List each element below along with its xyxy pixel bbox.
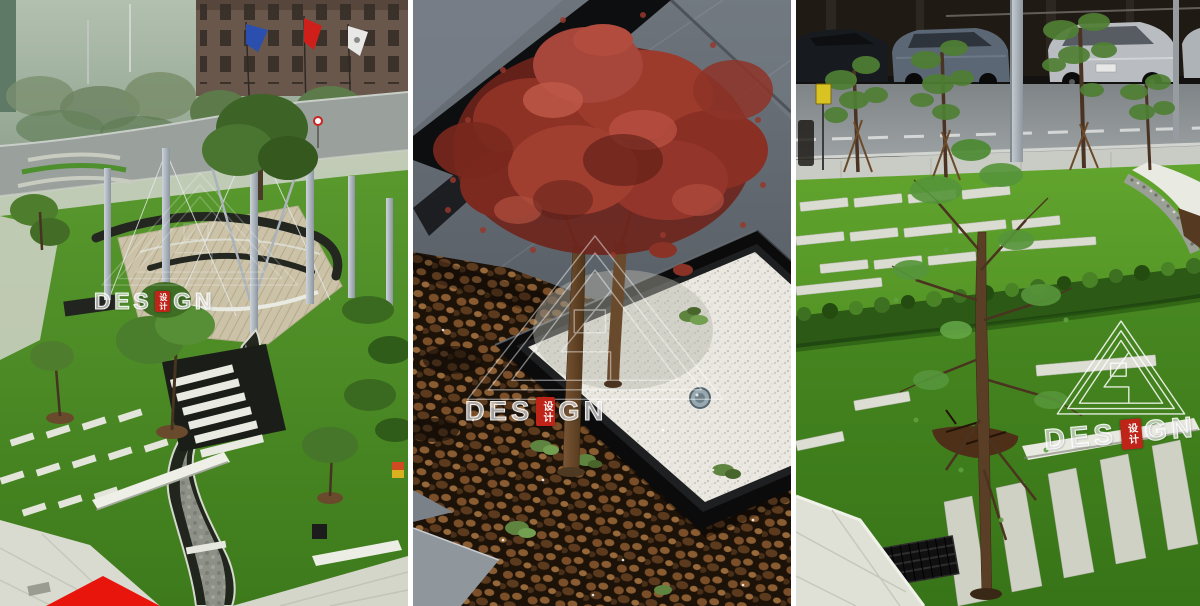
photo-panel-aerial-plaza: DES 设计 GN (0, 0, 408, 606)
lawn-strips-artwork (796, 0, 1200, 606)
photo-collage: DES 设计 GN (0, 0, 1200, 606)
red-maple-artwork (413, 0, 791, 606)
aerial-plaza-artwork (0, 0, 408, 606)
red-corner-triangle (46, 576, 160, 606)
photo-panel-red-maple: DES 设计 GN (413, 0, 791, 606)
photo-panel-lawn-strips: DES 设计 GN (796, 0, 1200, 606)
